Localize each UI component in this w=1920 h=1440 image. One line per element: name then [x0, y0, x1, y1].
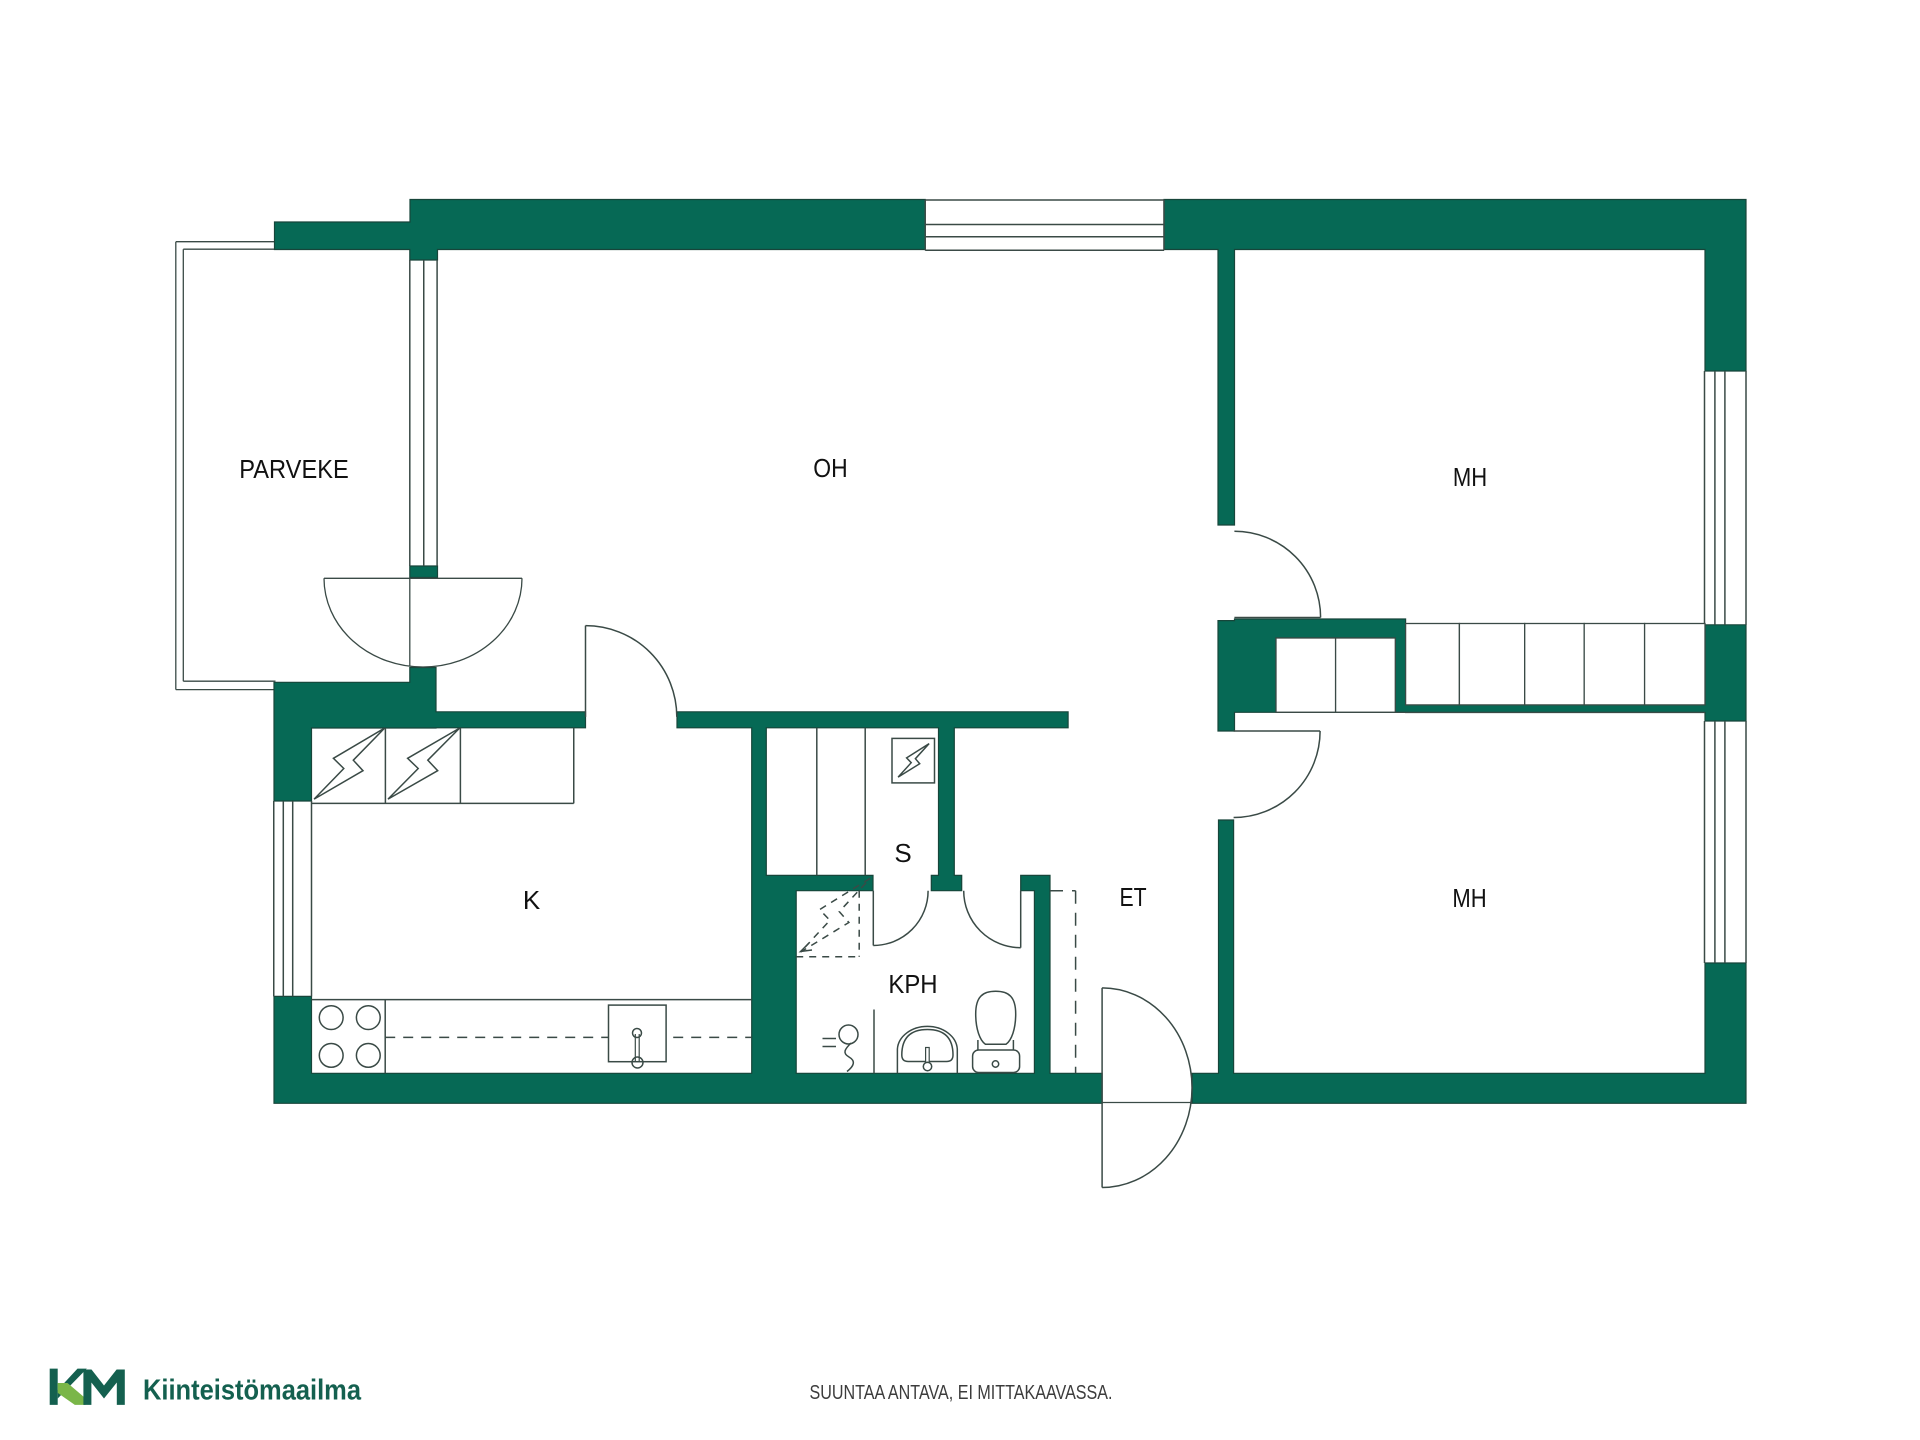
svg-text:SUUNTAA ANTAVA, EI MITTAKAAVAS: SUUNTAA ANTAVA, EI MITTAKAAVASSA. — [810, 1381, 1113, 1404]
svg-text:OH: OH — [813, 453, 847, 483]
svg-text:K: K — [523, 885, 541, 915]
svg-text:ET: ET — [1119, 882, 1146, 912]
svg-text:MH: MH — [1453, 462, 1487, 492]
svg-text:PARVEKE: PARVEKE — [239, 454, 349, 484]
svg-text:Kiinteistömaailma: Kiinteistömaailma — [143, 1375, 362, 1407]
svg-text:S: S — [894, 838, 911, 868]
svg-text:KPH: KPH — [888, 969, 937, 999]
svg-text:MH: MH — [1452, 883, 1486, 913]
